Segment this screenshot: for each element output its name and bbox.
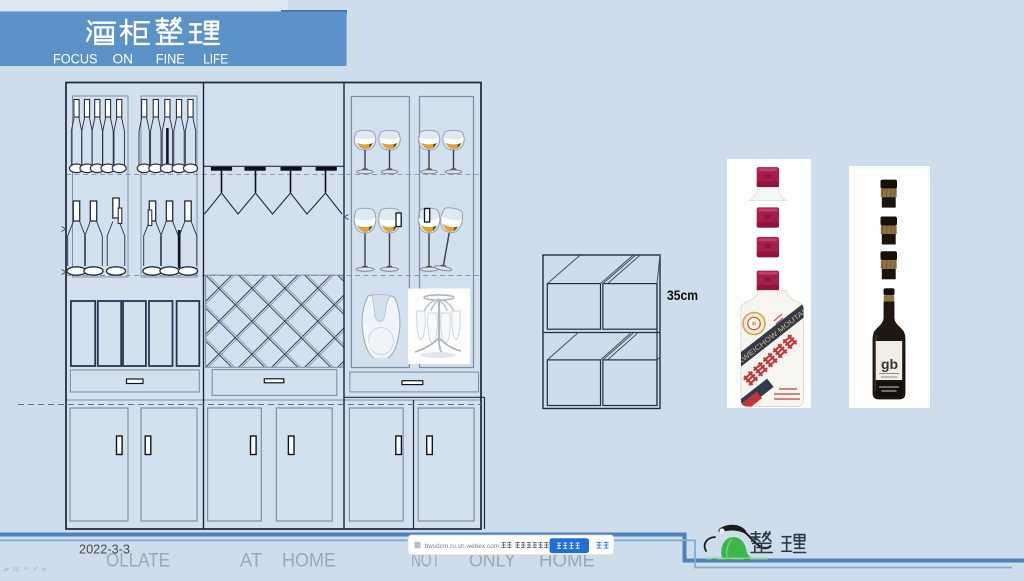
svg-text:AT: AT [240,550,262,572]
svg-text:FINE: FINE [156,52,185,67]
svg-text:bwsdcm.ru.sh.webex.com: bwsdcm.ru.sh.webex.com [425,543,500,550]
svg-text:ON: ON [113,52,134,67]
svg-text:HOME: HOME [282,550,336,572]
svg-text:gb: gb [881,356,898,372]
svg-text:FOCUS: FOCUS [53,52,98,67]
svg-text:LIFE: LIFE [203,52,228,67]
svg-text:2022-3-3: 2022-3-3 [79,543,130,557]
svg-text:35cm: 35cm [667,287,698,303]
